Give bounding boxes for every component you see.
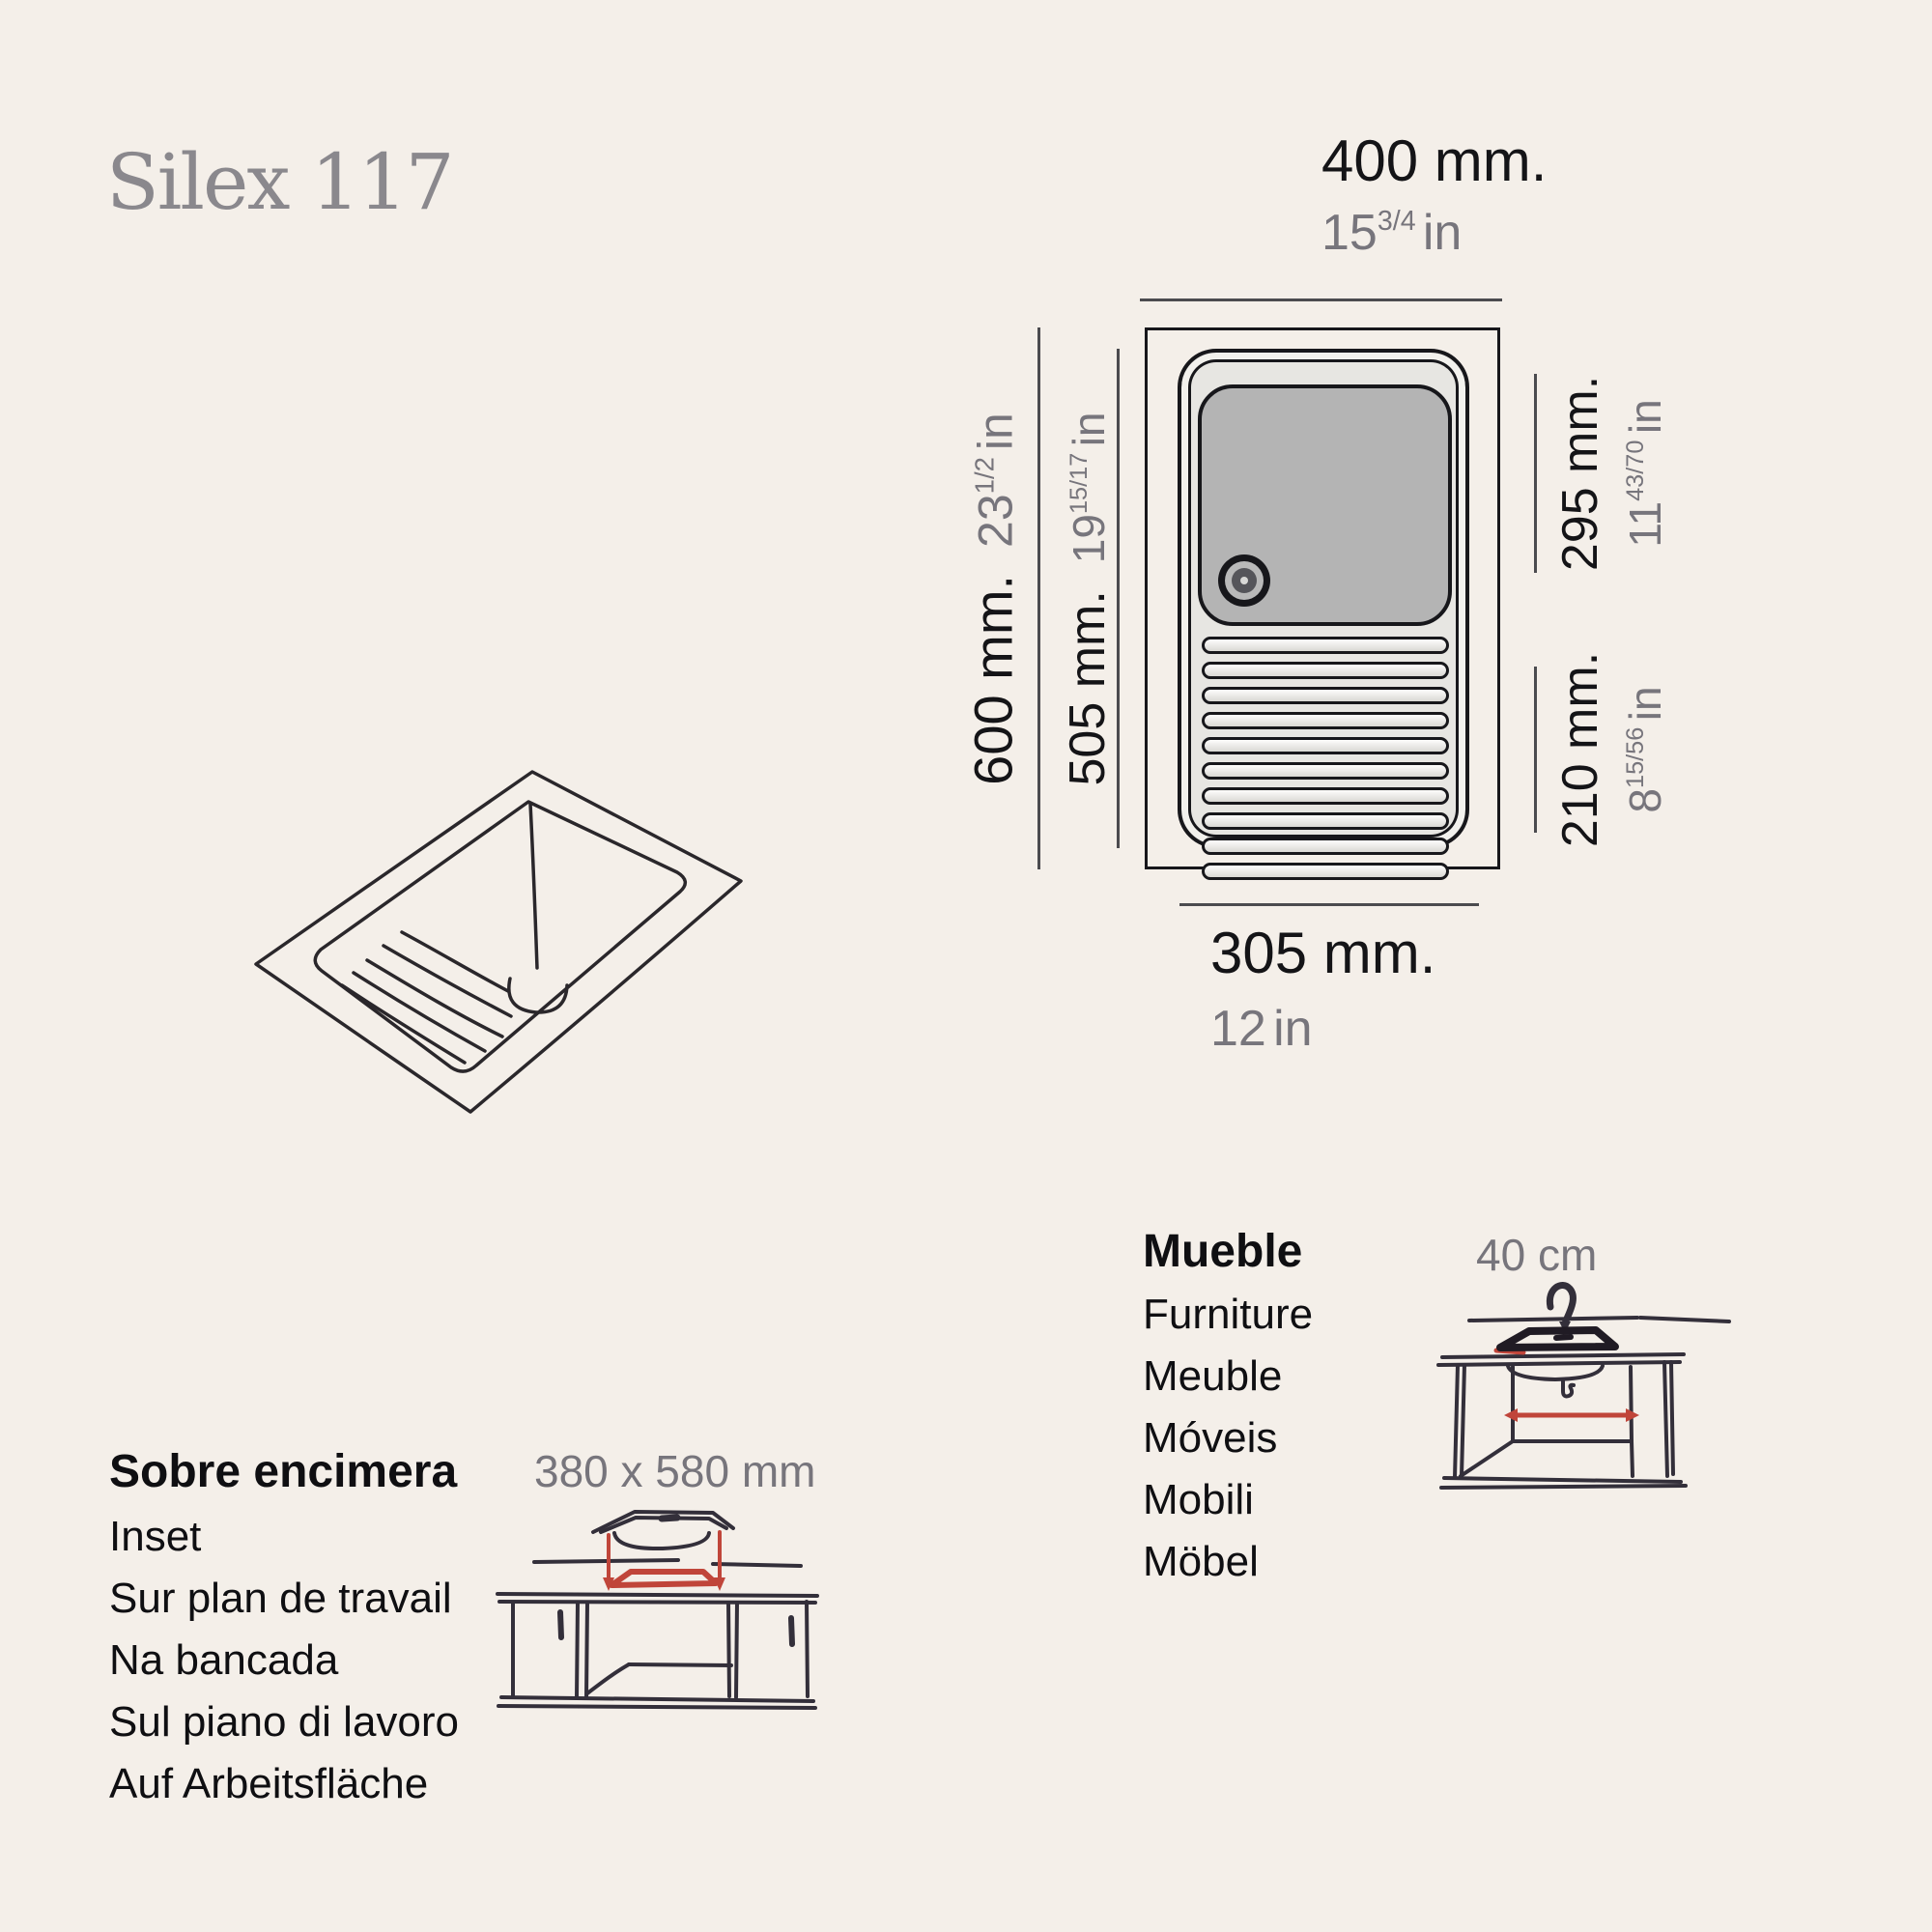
dim-left-inner-in: 1915/17in: [1063, 412, 1115, 563]
furniture-translation: Furniture: [1143, 1291, 1313, 1339]
furniture-translation: Meuble: [1143, 1352, 1282, 1401]
dim-right-upper-in: 1143/70in: [1619, 399, 1671, 547]
dim-right-lower-mm: 210 mm.: [1551, 652, 1609, 847]
inset-translation: Sul piano di lavoro: [109, 1698, 459, 1747]
dim-line-bottom: [1179, 903, 1479, 906]
inset-cutout-size: 380 x 580 mm: [534, 1445, 815, 1497]
drainboard-rib: [1202, 812, 1449, 830]
dim-line-left-outer: [1037, 327, 1040, 869]
inset-translation: Na bancada: [109, 1636, 338, 1685]
furniture-cabinet-width: 40 cm: [1476, 1229, 1597, 1281]
drainboard-rib: [1202, 762, 1449, 780]
drain-center: [1240, 577, 1248, 584]
dim-line-right-upper: [1534, 374, 1537, 573]
dim-right-lower-in: 815/56in: [1619, 686, 1671, 812]
spec-sheet: Silex 117 400 mm. 153/4in: [0, 0, 1932, 1932]
drainboard-rib: [1202, 712, 1449, 729]
inset-heading: Sobre encimera: [109, 1445, 457, 1498]
inset-translation: Inset: [109, 1513, 201, 1561]
dim-line-left-inner: [1117, 349, 1120, 848]
furniture-heading: Mueble: [1143, 1225, 1302, 1278]
inset-translation: Auf Arbeitsfläche: [109, 1760, 428, 1808]
furniture-translation: Mobili: [1143, 1476, 1254, 1524]
dim-line-right-lower: [1534, 667, 1537, 833]
drainboard-rib: [1202, 838, 1449, 855]
drainboard-rib: [1202, 737, 1449, 754]
dim-left-outer-in: 231/2in: [968, 412, 1024, 548]
inset-installation-sketch: [488, 1502, 826, 1715]
drainboard-rib: [1202, 787, 1449, 805]
sink-3d-sketch: [227, 729, 753, 1135]
dim-left-outer-mm: 600 mm.: [962, 575, 1025, 785]
drain-icon: [1218, 554, 1270, 607]
drainboard-rib: [1202, 662, 1449, 679]
dim-bottom-mm: 305 mm.: [1210, 920, 1435, 986]
dimension-label-bottom: 305 mm. 12in: [1210, 920, 1435, 1058]
inset-translation: Sur plan de travail: [109, 1575, 452, 1623]
drainboard-rib: [1202, 863, 1449, 880]
drainboard-ribs: [1202, 637, 1449, 888]
dim-bottom-in: 12in: [1210, 1000, 1435, 1058]
dim-line-top: [1140, 298, 1502, 301]
dim-right-upper-mm: 295 mm.: [1551, 376, 1609, 571]
furniture-translation: Móveis: [1143, 1414, 1277, 1463]
drainboard-rib: [1202, 687, 1449, 704]
furniture-translation: Möbel: [1143, 1538, 1259, 1586]
furniture-installation-sketch: [1435, 1275, 1734, 1502]
page-title: Silex 117: [106, 137, 453, 227]
drainboard-rib: [1202, 637, 1449, 654]
dim-left-inner-mm: 505 mm.: [1059, 590, 1117, 785]
